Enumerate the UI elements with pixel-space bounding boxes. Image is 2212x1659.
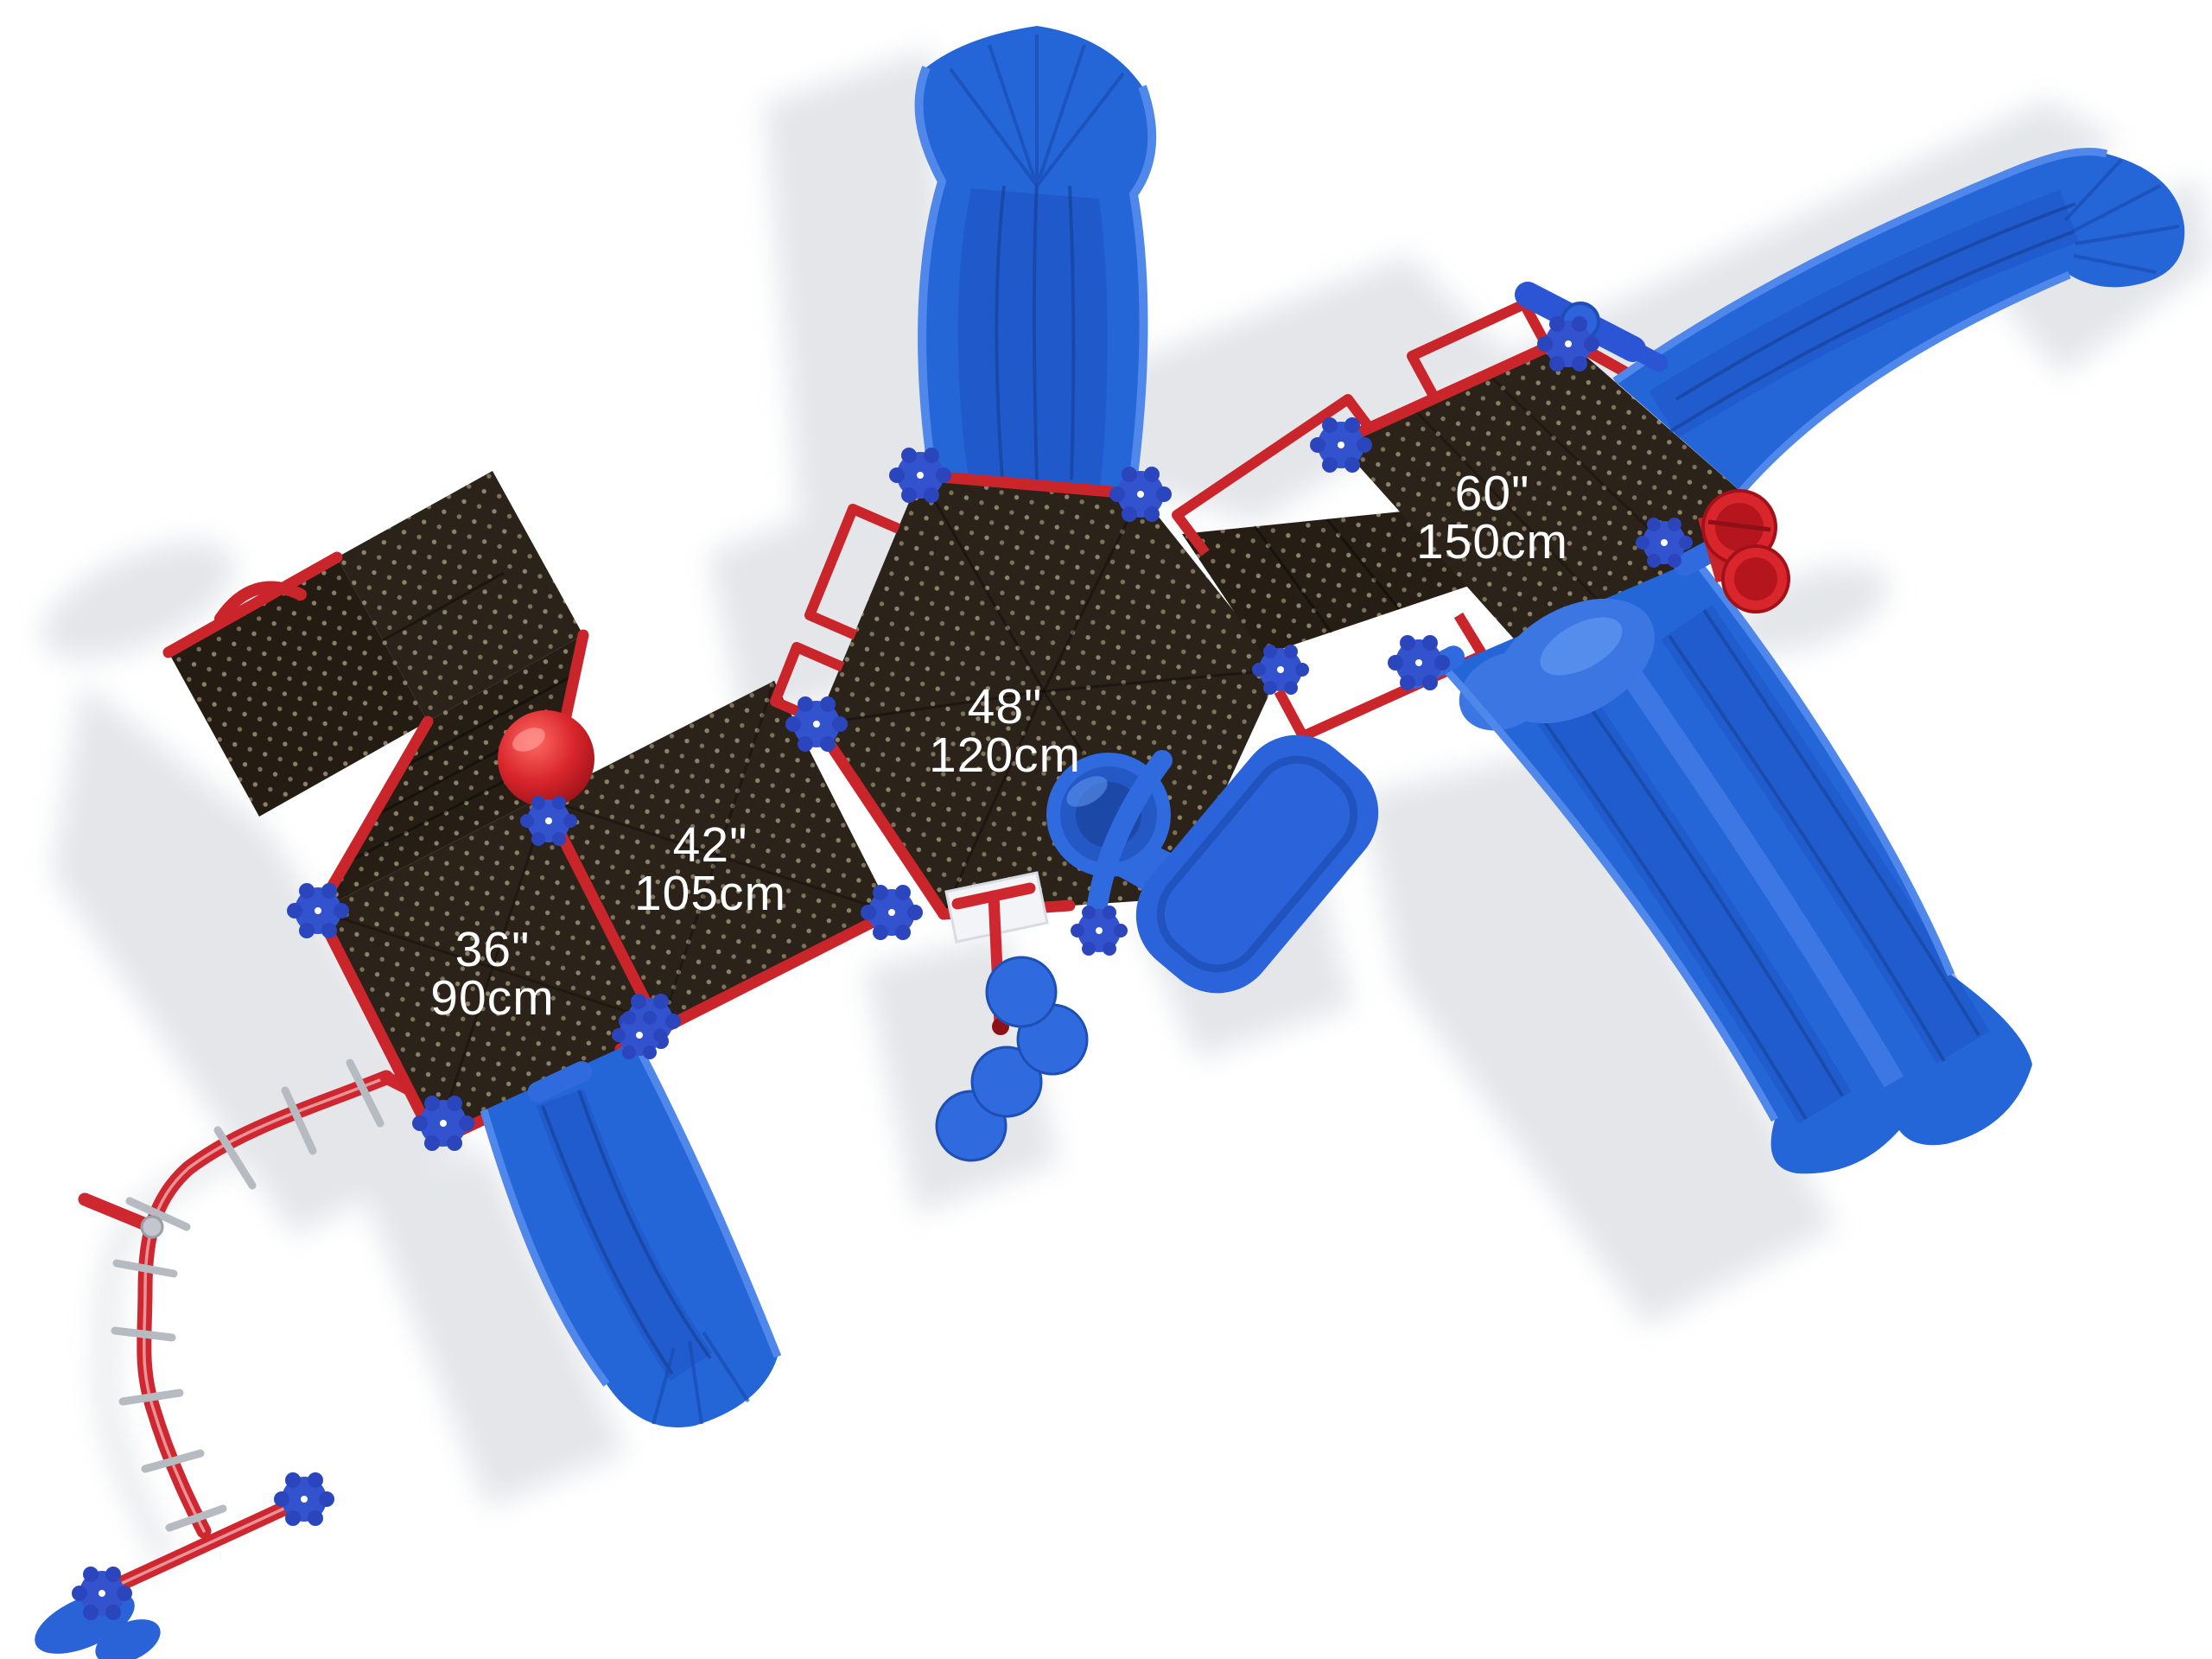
deck-48-label-cm: 120cm (929, 728, 1081, 783)
deck-48-label-inches: 48" (968, 679, 1043, 734)
deck-36-label-cm: 90cm (430, 970, 554, 1026)
deck-36-label-inches: 36" (455, 922, 531, 977)
climber-clamp (142, 1217, 162, 1237)
playground-top-view-render: 36" 90cm 42" 105cm 48" 120cm 60" 150cm (0, 0, 2212, 1659)
deck-42-label-cm: 105cm (634, 866, 786, 921)
fan-slide[interactable] (919, 26, 1153, 514)
spinner-ball[interactable] (498, 710, 594, 807)
deck-60-label-inches: 60" (1455, 466, 1530, 521)
deck-60-label-cm: 150cm (1416, 514, 1568, 569)
deck-42-label-inches: 42" (673, 817, 748, 873)
